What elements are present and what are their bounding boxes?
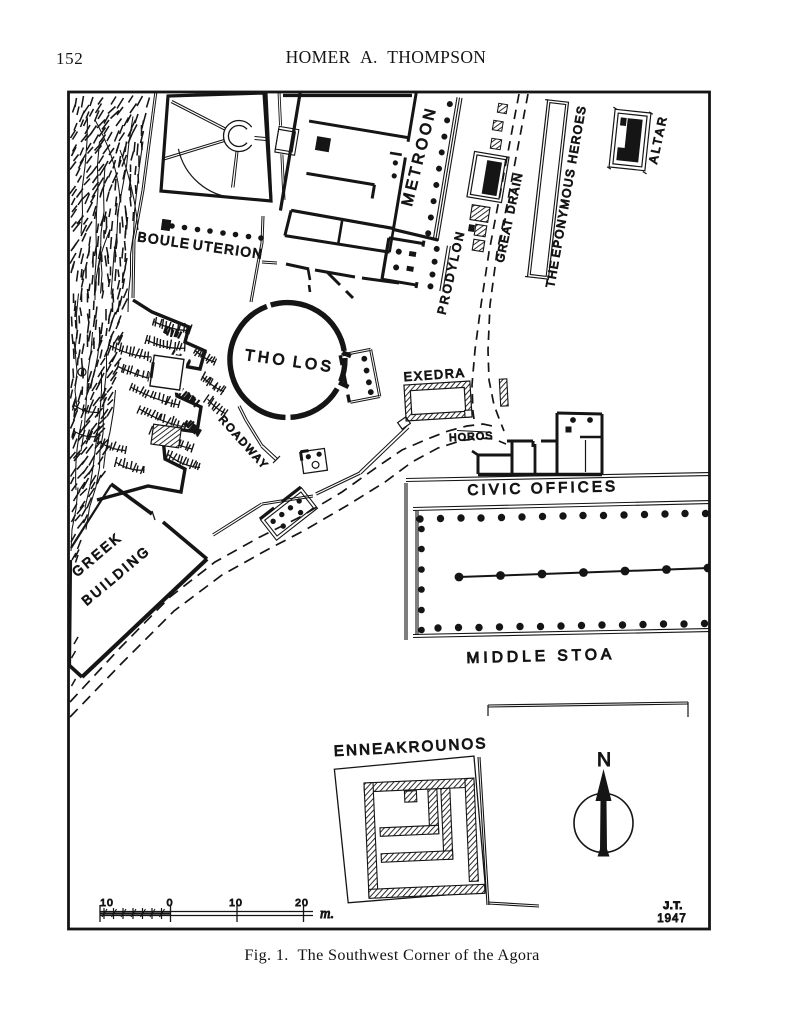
svg-text:10: 10 xyxy=(100,897,114,909)
svg-text:m.: m. xyxy=(320,906,334,922)
svg-text:N: N xyxy=(597,749,611,771)
svg-text:10: 10 xyxy=(229,897,243,909)
svg-text:152: 152 xyxy=(56,49,83,68)
svg-text:Fig. 1. The Southwest Corner: Fig. 1. The Southwest Corner of the Agor… xyxy=(244,946,539,964)
svg-text:J.T.: J.T. xyxy=(663,900,683,912)
svg-text:HOMER A. THOMPSON: HOMER A. THOMPSON xyxy=(286,47,487,67)
svg-text:0: 0 xyxy=(167,897,174,909)
svg-text:20: 20 xyxy=(295,897,309,909)
svg-text:1947: 1947 xyxy=(657,913,687,925)
